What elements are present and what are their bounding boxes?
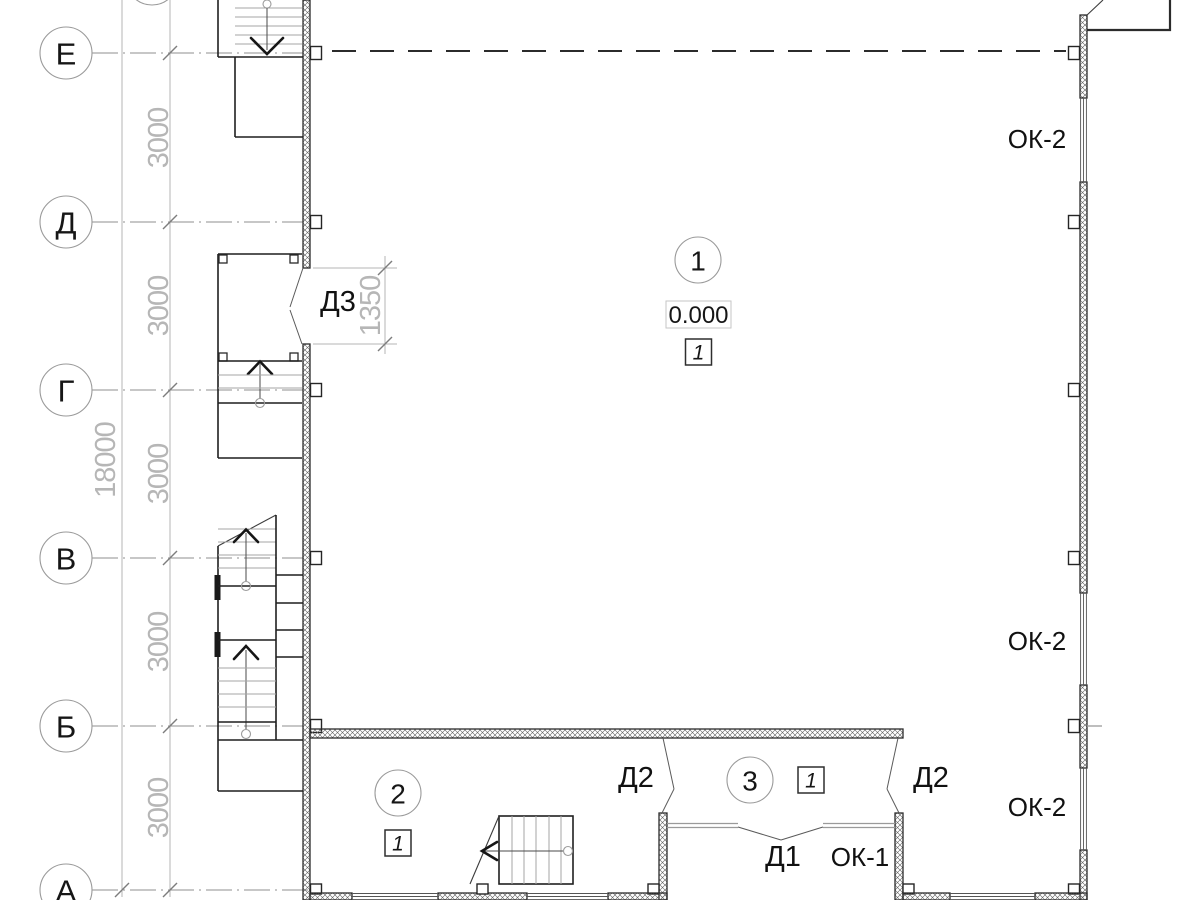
room-tag-3: 3	[727, 757, 773, 803]
axis-label-v: В	[56, 542, 77, 577]
window-ok2-top-glazing	[1081, 98, 1087, 182]
floor-mark-value: 1	[392, 833, 404, 856]
door-swing-d2-right	[887, 738, 899, 813]
axis-g: Г	[40, 364, 303, 416]
room-number-3: 3	[742, 766, 758, 797]
floor-plan-canvas: 1350 3000 3000 3000 3000 3000 18000 Е Д …	[0, 0, 1200, 900]
dim-text-3000-2: 3000	[143, 276, 175, 337]
door-label-d3: Д3	[320, 286, 356, 318]
axis-label-g: Г	[58, 374, 75, 409]
door-swing-d1	[738, 827, 823, 840]
window-ok2-low-glazing	[1081, 768, 1087, 850]
axis-label-b: Б	[56, 710, 76, 745]
dimension-lines: 1350 3000 3000 3000 3000 3000 18000	[90, 0, 397, 897]
window-label-ok2-mid: ОК-2	[1008, 626, 1067, 656]
dim-text-3000-5: 3000	[143, 778, 175, 839]
stair-post-marker	[263, 0, 271, 8]
canopy-outline	[1086, 0, 1170, 30]
dim-text-18000: 18000	[90, 422, 122, 498]
stair-main	[215, 515, 304, 791]
room-number-1: 1	[690, 246, 706, 277]
axis-label-e: Е	[56, 37, 77, 72]
door-label-d1: Д1	[765, 841, 801, 873]
door-swing-d3	[290, 268, 303, 344]
floor-mark-value: 1	[805, 770, 817, 793]
axis-label-a: А	[56, 874, 77, 900]
elevation-value: 0.000	[668, 302, 728, 329]
axis-d: Д	[40, 196, 303, 248]
stair-wall-post	[215, 575, 221, 600]
stair-wall-post	[215, 632, 221, 657]
axis-v: В	[40, 532, 303, 584]
stair-top	[218, 0, 303, 137]
wall-left	[303, 0, 310, 900]
window-label-ok1: ОК-1	[831, 842, 890, 872]
elevation-mark: 0.000	[666, 301, 731, 329]
door-label-d2-right: Д2	[913, 762, 949, 794]
axis-a: А	[40, 864, 310, 900]
stair-post-marker	[242, 730, 251, 739]
dim-text-3000-3: 3000	[143, 444, 175, 505]
window-ok2-mid-glazing	[1081, 593, 1087, 685]
dim-text-3000-4: 3000	[143, 612, 175, 673]
room-number-2: 2	[390, 779, 406, 810]
wall-middle-horizontal	[310, 729, 903, 738]
stair-room2	[470, 816, 573, 884]
wall-bottom	[310, 884, 1087, 900]
room-tag-2: 2	[375, 770, 421, 816]
stair-d3-landing	[218, 254, 302, 458]
floor-plan-drawing: 1350 3000 3000 3000 3000 3000 18000 Е Д …	[0, 0, 1200, 900]
room-tag-1: 1	[675, 237, 721, 283]
floor-mark-value: 1	[693, 342, 705, 365]
dim-text-1350: 1350	[355, 276, 387, 337]
floor-mark-room3: 1	[798, 767, 824, 793]
window-label-ok2-low: ОК-2	[1008, 792, 1067, 822]
dim-text-3000-1: 3000	[143, 108, 175, 169]
door-swing-d2-left	[662, 738, 674, 813]
wall-right-ticks	[1069, 47, 1080, 895]
window-label-ok2-top: ОК-2	[1008, 124, 1067, 154]
axis-b: Б	[40, 700, 303, 752]
door-label-d2-left: Д2	[618, 762, 654, 794]
wall-left-ticks	[311, 47, 322, 895]
axis-label-d: Д	[56, 206, 77, 241]
floor-mark-room2: 1	[385, 830, 411, 856]
floor-mark-room1: 1	[686, 339, 712, 365]
stair-post-marker	[564, 847, 573, 856]
